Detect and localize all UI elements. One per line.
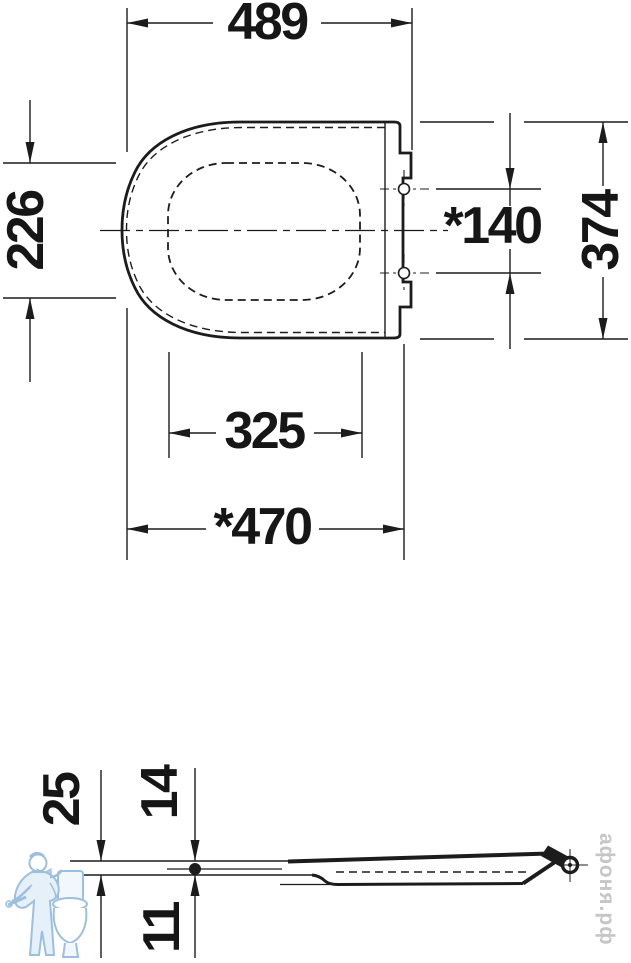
dim-label-489: 489 (227, 0, 306, 48)
drawing-canvas (0, 0, 631, 963)
seat-side-view (70, 846, 588, 885)
dim-25 (97, 770, 106, 958)
technical-drawing-page: 489 226 *140 374 325 *470 25 14 11 афоня… (0, 0, 631, 963)
dim-label-226: 226 (0, 191, 52, 270)
dim-label-374: 374 (575, 191, 627, 270)
hinge-hole-bottom (380, 254, 432, 292)
dim-label-325: 325 (224, 405, 303, 457)
dim-label-11: 11 (136, 903, 188, 953)
seat-top-view (100, 122, 448, 338)
profile-bottom-edge (312, 875, 523, 885)
dim-label-140: *140 (444, 200, 541, 252)
plumber-with-toilet-logo (6, 853, 87, 957)
hinge-axis-dot (189, 863, 201, 875)
profile-top-edge (288, 854, 549, 862)
hinge-hole-top (380, 170, 432, 208)
watermark-text: афоня.рф (594, 833, 618, 963)
dim-label-470: *470 (214, 501, 311, 553)
dim-label-14: 14 (134, 767, 186, 820)
seat-opening-dashed (168, 163, 360, 300)
dim-label-25: 25 (36, 774, 88, 827)
